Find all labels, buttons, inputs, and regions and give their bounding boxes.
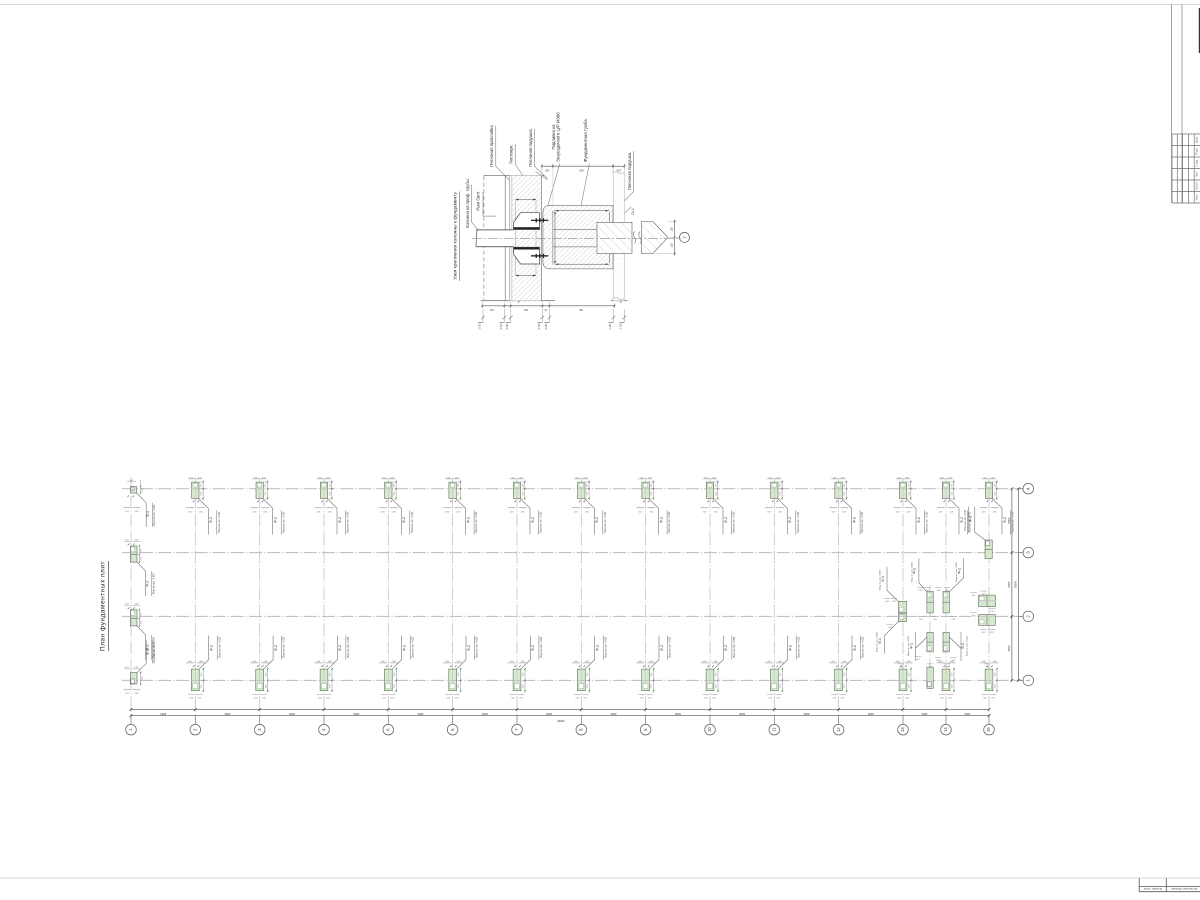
svg-text:Верх на отм. -0.620: Верх на отм. -0.620 (863, 636, 865, 657)
svg-text:Верх на отм. -0.620: Верх на отм. -0.620 (153, 636, 155, 657)
svg-text:Верх на отм. -0.810: Верх на отм. -0.810 (879, 569, 881, 589)
svg-text:80000: 80000 (557, 719, 565, 723)
svg-text:Верх на отм. -0.620: Верх на отм. -0.620 (284, 636, 286, 657)
svg-text:Верх на отм. -0.620: Верх на отм. -0.620 (541, 636, 543, 657)
svg-text:10: 10 (707, 727, 712, 732)
svg-text:Ф-2: Ф-2 (1003, 517, 1007, 523)
svg-text:150: 150 (670, 227, 673, 232)
svg-text:Верх на отм. -0.620: Верх на отм. -0.620 (1013, 511, 1015, 532)
svg-text:Ф-2: Ф-2 (338, 645, 342, 651)
svg-text:6000: 6000 (1007, 581, 1011, 587)
svg-text:6000: 6000 (1007, 645, 1011, 651)
svg-text:Ф-2: Ф-2 (659, 517, 663, 523)
svg-text:Ф-2: Ф-2 (595, 517, 599, 523)
svg-text:625: 625 (579, 168, 584, 172)
svg-text:Верх на отм. -0.810: Верх на отм. -0.810 (956, 561, 958, 581)
svg-text:Ф-2: Ф-2 (467, 645, 471, 651)
svg-text:Ф-2: Ф-2 (274, 645, 278, 651)
svg-text:Копировал Формат: Копировал Формат (1170, 887, 1197, 891)
svg-text:Верх на отм. -0.620: Верх на отм. -0.620 (412, 636, 414, 657)
svg-text:Ф-2: Ф-2 (960, 517, 964, 523)
svg-text:Верх на отм. -0.620: Верх на отм. -0.620 (541, 511, 543, 532)
svg-text:Ф-1: Ф-1 (910, 643, 914, 649)
svg-text:Песчаная подушка.: Песчаная подушка. (627, 152, 632, 191)
svg-text:Ф-2: Ф-2 (853, 645, 857, 651)
svg-text:Колонна из проф. трубы.: Колонна из проф. трубы. (465, 178, 470, 228)
svg-text:N док.: N док. (1194, 159, 1198, 167)
svg-text:Ф-2: Ф-2 (913, 568, 917, 574)
svg-text:Верх на отм. -0.810: Верх на отм. -0.810 (911, 561, 913, 581)
svg-text:Ф-2: Ф-2 (852, 517, 856, 523)
svg-text:Ф-2: Ф-2 (466, 517, 470, 523)
svg-text:-0.300: -0.300 (539, 323, 541, 330)
svg-text:Фундаментная тумба.: Фундаментная тумба. (583, 118, 588, 162)
svg-text:Ф-2: Ф-2 (146, 644, 150, 650)
svg-text:-1.100: -1.100 (621, 323, 623, 330)
svg-text:140: 140 (489, 308, 494, 311)
svg-text:Подп.: Подп. (1194, 147, 1198, 154)
svg-text:Верх на отм. -0.620: Верх на отм. -0.620 (153, 573, 155, 594)
svg-text:900: 900 (578, 308, 583, 311)
svg-text:11: 11 (772, 727, 777, 732)
svg-text:План фундаментных плит: План фундаментных плит (100, 561, 107, 651)
svg-text:150: 150 (670, 243, 673, 248)
svg-text:Верх на отм. -0.620: Верх на отм. -0.620 (348, 511, 350, 532)
svg-text:Верх на отм. -0.620: Верх на отм. -0.620 (605, 636, 607, 657)
svg-text:Узел крепления колонны к фунда: Узел крепления колонны к фундаменту (453, 192, 459, 280)
svg-text:Ф-2: Ф-2 (969, 516, 973, 522)
svg-text:Ф-2: Ф-2 (660, 645, 664, 651)
svg-text:безусадочного Ц/Р М300: безусадочного Ц/Р М300 (556, 112, 561, 162)
svg-text:Верх на отм. -0.620: Верх на отм. -0.620 (219, 511, 221, 532)
svg-text:Дата: Дата (1194, 136, 1198, 142)
svg-text:Ф-2: Ф-2 (789, 645, 793, 651)
svg-text:13: 13 (900, 727, 905, 732)
svg-text:Ф-2: Ф-2 (146, 581, 150, 587)
svg-text:-0.250: -0.250 (507, 323, 509, 330)
svg-text:Верх на отм. -0.620: Верх на отм. -0.620 (965, 509, 967, 530)
svg-text:Верх на отм. -0.620: Верх на отм. -0.620 (476, 511, 478, 532)
svg-text:Верх на отм. -0.620: Верх на отм. -0.620 (283, 511, 285, 532)
svg-text:Ростверк.: Ростверк. (509, 144, 514, 163)
svg-text:Верх на отм. -0.620: Верх на отм. -0.620 (734, 636, 736, 657)
svg-text:Верх на отм. -0.620: Верх на отм. -0.620 (477, 636, 479, 657)
svg-text:Верх на отм. -0.620: Верх на отм. -0.620 (219, 636, 221, 657)
svg-text:Верх на отм. -0.620: Верх на отм. -0.620 (605, 511, 607, 532)
svg-text:Изм.: Изм. (1194, 194, 1198, 200)
svg-text:Верх на отм. -0.620: Верх на отм. -0.620 (670, 636, 672, 657)
svg-text:14: 14 (943, 727, 948, 732)
svg-text:Ф-2: Ф-2 (788, 517, 792, 523)
svg-text:15: 15 (986, 727, 991, 732)
svg-text:Ф-2: Ф-2 (531, 645, 535, 651)
svg-text:Верх на отм. -0.620: Верх на отм. -0.620 (798, 636, 800, 657)
svg-text:Ф-2: Ф-2 (724, 645, 728, 651)
svg-text:Ф-2: Ф-2 (402, 517, 406, 523)
svg-text:18000: 18000 (1013, 580, 1017, 588)
svg-text:Верх на отм. -0.620: Верх на отм. -0.620 (154, 504, 156, 525)
svg-text:Ск-1: Ск-1 (631, 208, 635, 215)
svg-text:Ф-2: Ф-2 (961, 643, 965, 649)
svg-text:Лист: Лист (1194, 171, 1198, 177)
svg-text:300: 300 (523, 308, 528, 311)
svg-text:Верх на отм. -0.620: Верх на отм. -0.620 (798, 511, 800, 532)
svg-text:-1.220: -1.220 (610, 323, 612, 330)
svg-text:Верх на отм. -0.620: Верх на отм. -0.620 (927, 511, 929, 532)
svg-text:Ф-2: Ф-2 (596, 645, 600, 651)
svg-text:6000: 6000 (1007, 517, 1011, 523)
svg-text:0.000: 0.000 (479, 323, 481, 329)
svg-text:Верх на отм. -0.810: Верх на отм. -0.810 (877, 631, 879, 651)
svg-text:Песчаная подушка.: Песчаная подушка. (528, 128, 533, 167)
svg-text:-0.640: -0.640 (546, 323, 548, 330)
svg-text:Песчаная прослойка: Песчаная прослойка (489, 125, 494, 167)
svg-text:12: 12 (836, 727, 841, 732)
svg-text:Верх на отм. -0.620: Верх на отм. -0.620 (669, 511, 671, 532)
svg-text:Ф-2: Ф-2 (274, 517, 278, 523)
svg-text:Верх на отм. -0.620: Верх на отм. -0.620 (908, 635, 910, 655)
svg-text:Кол.уч: Кол.уч (1194, 181, 1198, 189)
svg-text:Верх на отм. -0.620: Верх на отм. -0.620 (966, 635, 968, 655)
svg-text:-0.200: -0.200 (501, 323, 503, 330)
svg-text:Верх на отм. -0.620: Верх на отм. -0.620 (734, 511, 736, 532)
svg-text:Ф-2: Ф-2 (338, 517, 342, 523)
svg-text:Рым болт: Рым болт (476, 191, 481, 210)
svg-text:Ф-2: Ф-2 (917, 517, 921, 523)
svg-text:100: 100 (545, 168, 550, 172)
svg-text:Верх на отм. -0.620: Верх на отм. -0.620 (348, 636, 350, 657)
svg-text:Ф-2: Ф-2 (209, 517, 213, 523)
svg-text:Ф-2: Ф-2 (403, 645, 407, 651)
svg-text:Ф-2: Ф-2 (210, 645, 214, 651)
svg-text:Ф-2: Ф-2 (724, 517, 728, 523)
svg-text:Верх на отм. -0.620: Верх на отм. -0.620 (862, 511, 864, 532)
svg-text:Ф-2: Ф-2 (531, 517, 535, 523)
svg-text:Верх на отм. -0.620: Верх на отм. -0.620 (412, 511, 414, 532)
svg-text:Ф-1: Ф-1 (146, 511, 150, 517)
svg-text:Формат А2х3: Формат А2х3 (1144, 887, 1163, 891)
